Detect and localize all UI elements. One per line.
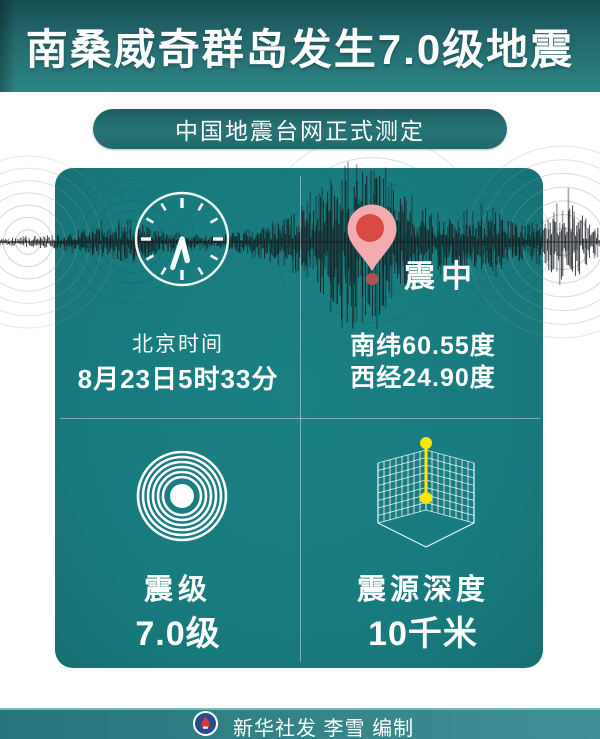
beijing-time-label: 北京时间 — [55, 328, 301, 358]
magnitude-value: 7.0级 — [55, 606, 301, 655]
xinhua-logo-icon — [192, 710, 219, 737]
depth-label: 震源深度 — [301, 566, 545, 608]
headline-banner: 南桑威奇群岛发生7.0级地震 — [0, 0, 600, 92]
beijing-time-value: 8月23日5时33分 — [55, 359, 301, 396]
headline-title: 南桑威奇群岛发生7.0级地震 — [26, 16, 574, 77]
latitude-value: 南纬60.55度 — [301, 326, 545, 362]
panel-divider-horizontal — [60, 418, 540, 419]
magnitude-label: 震级 — [55, 566, 301, 608]
earthquake-infographic: 南桑威奇群岛发生7.0级地震 中国地震台网正式测定 — [0, 0, 600, 739]
source-badge-label: 中国地震台网正式测定 — [175, 112, 425, 146]
depth-value: 10千米 — [301, 606, 545, 655]
longitude-value: 西经24.90度 — [301, 358, 545, 394]
epicenter-label: 震中 — [404, 251, 478, 296]
credit-text: 新华社发 李雪 编制 — [233, 712, 414, 739]
source-badge: 中国地震台网正式测定 — [93, 109, 507, 149]
